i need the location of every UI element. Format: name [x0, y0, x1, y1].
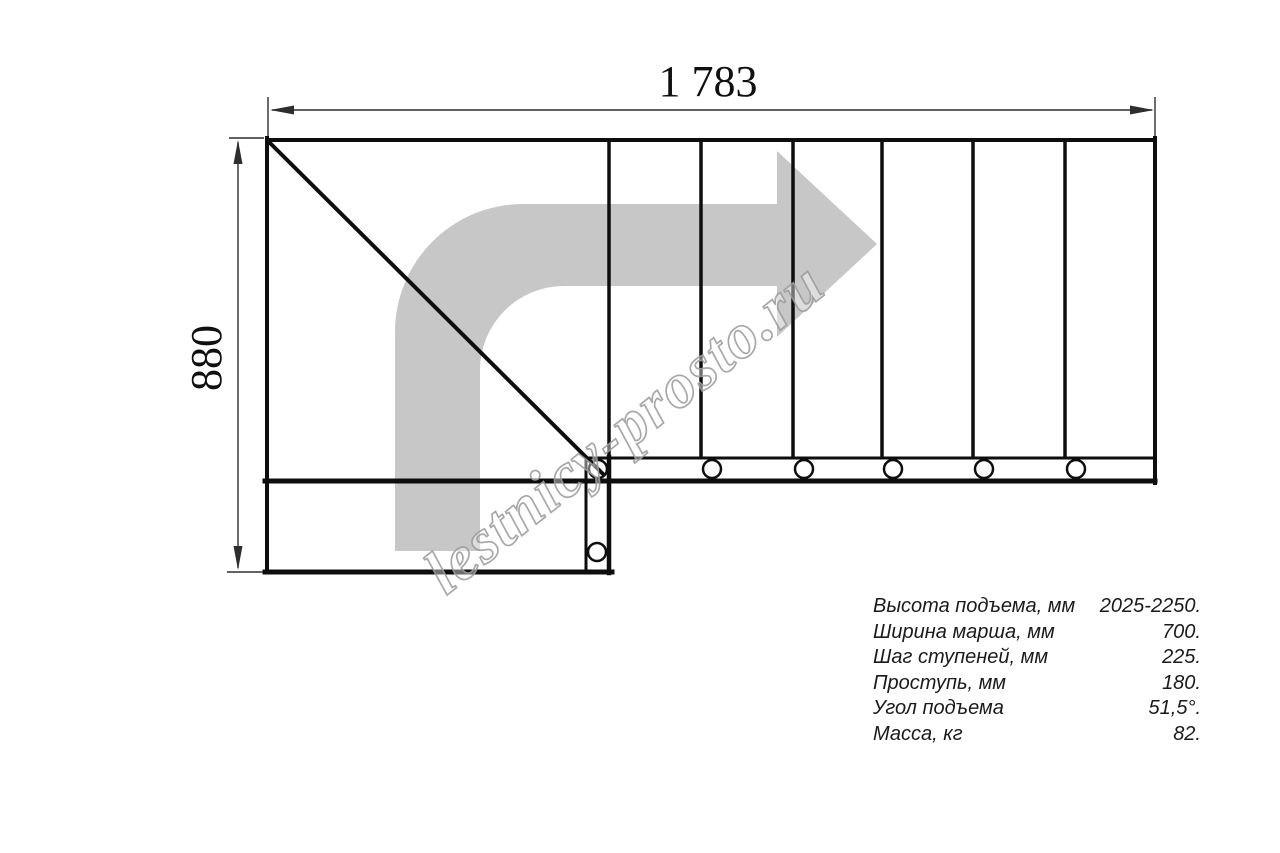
dim-width-text: 1 783: [659, 57, 758, 106]
spec-value: 180.: [1162, 671, 1201, 697]
spec-row: Масса, кг 82.: [873, 722, 1201, 748]
spec-row: Угол подъема 51,5°.: [873, 696, 1201, 722]
spec-row: Высота подъема, мм 2025-2250.: [873, 594, 1201, 620]
spec-label: Масса, кг: [873, 722, 963, 748]
fixing-circle: [703, 460, 721, 478]
fixing-circle: [975, 460, 993, 478]
dim-arrowhead: [234, 140, 243, 164]
fixing-circle: [1067, 460, 1085, 478]
fixing-circle: [884, 460, 902, 478]
stair-plan-page: 1 783 880 lestnicy-prosto.ru Высота подъ…: [0, 0, 1280, 853]
fixing-circle: [588, 543, 606, 561]
spec-row: Проступь, мм 180.: [873, 671, 1201, 697]
direction-arrow: [395, 151, 877, 551]
spec-value: 2025-2250.: [1100, 594, 1201, 620]
spec-label: Ширина марша, мм: [873, 620, 1055, 646]
spec-value: 51,5°.: [1149, 696, 1201, 722]
fixing-circle: [795, 460, 813, 478]
spec-label: Проступь, мм: [873, 671, 1006, 697]
spec-value: 700.: [1162, 620, 1201, 646]
spec-label: Угол подъема: [873, 696, 1004, 722]
dim-arrowhead: [270, 106, 294, 115]
spec-value: 225.: [1162, 645, 1201, 671]
dim-height-text: 880: [182, 325, 231, 391]
specs-table: Высота подъема, мм 2025-2250. Ширина мар…: [873, 594, 1201, 747]
spec-label: Шаг ступеней, мм: [873, 645, 1048, 671]
fixing-circles: [588, 460, 1085, 561]
spec-row: Шаг ступеней, мм 225.: [873, 645, 1201, 671]
dim-arrowhead: [234, 546, 243, 570]
spec-value: 82.: [1173, 722, 1201, 748]
spec-label: Высота подъема, мм: [873, 594, 1075, 620]
dim-arrowhead: [1130, 106, 1154, 115]
spec-row: Ширина марша, мм 700.: [873, 620, 1201, 646]
